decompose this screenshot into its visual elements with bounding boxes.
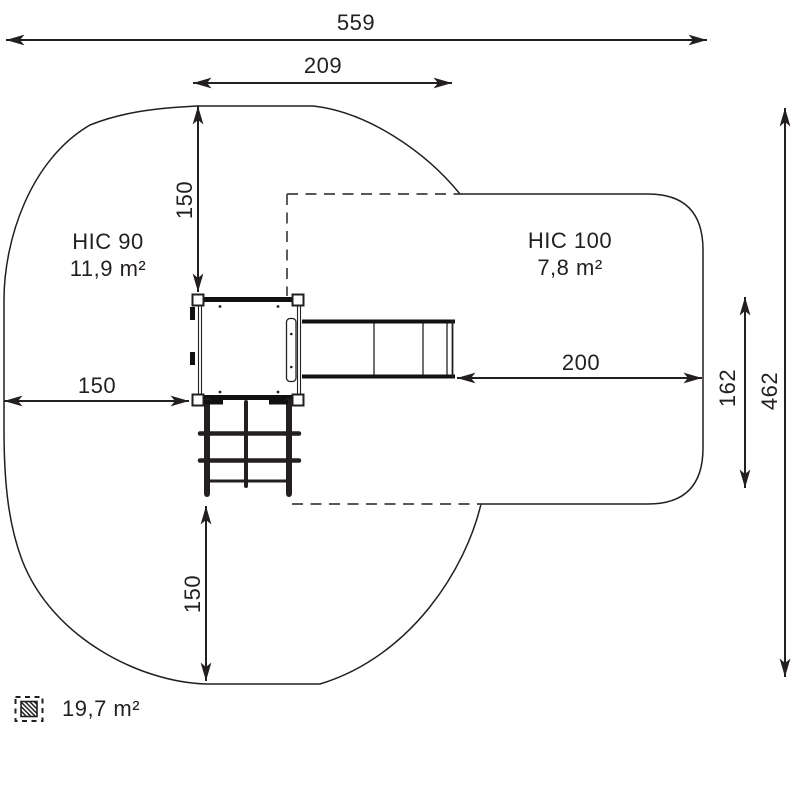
hic100-zone-label: HIC 100 7,8 m² [528,227,612,281]
slide-entrance-flap [287,319,297,382]
hic90-zone-label: HIC 90 11,9 m² [70,228,146,282]
plan-drawing [0,0,800,800]
dim-top-offset-label: 150 [174,181,196,219]
platform-screw-dots [219,305,293,393]
dim-total-width-label: 559 [337,12,375,34]
hic90-area: 11,9 m² [70,255,146,282]
platform-tower [190,295,304,406]
dim-right-edge-height-label: 162 [717,369,739,407]
dim-left-offset-label: 150 [78,375,116,397]
slide-section-dividers [374,324,447,375]
ladder [200,400,299,494]
hic100-area: 7,8 m² [528,254,612,281]
dim-upper-width-label: 209 [304,55,342,77]
dim-bottom-offset-label: 150 [182,575,204,613]
ladder-mount-right [269,400,288,405]
platform-wall-panel-upper [190,307,195,320]
hic90-name: HIC 90 [70,228,146,255]
dim-right-offset-label: 200 [562,352,600,374]
platform-wall-panel-lower [190,352,195,365]
area-hatch-icon [13,694,47,724]
safety-zone-plan: 559 209 150 150 150 200 162 462 HIC 90 1… [0,0,800,800]
dim-total-height-label: 462 [759,372,781,410]
hic100-name: HIC 100 [528,227,612,254]
ladder-mount-left [204,400,223,405]
legend-total-area: 19,7 m² [62,696,140,722]
slide [302,320,455,378]
legend: 19,7 m² [13,694,140,724]
platform-side-walls [199,306,301,394]
